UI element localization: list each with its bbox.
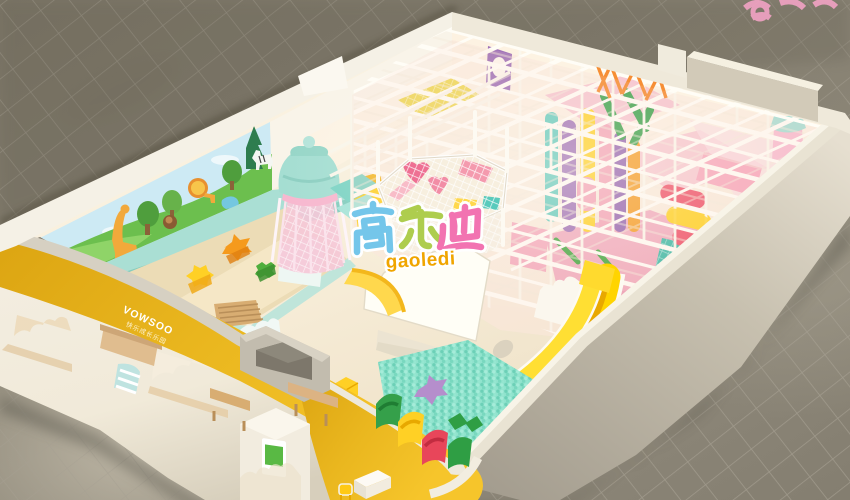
- svg-text:gaoledi: gaoledi: [385, 248, 456, 273]
